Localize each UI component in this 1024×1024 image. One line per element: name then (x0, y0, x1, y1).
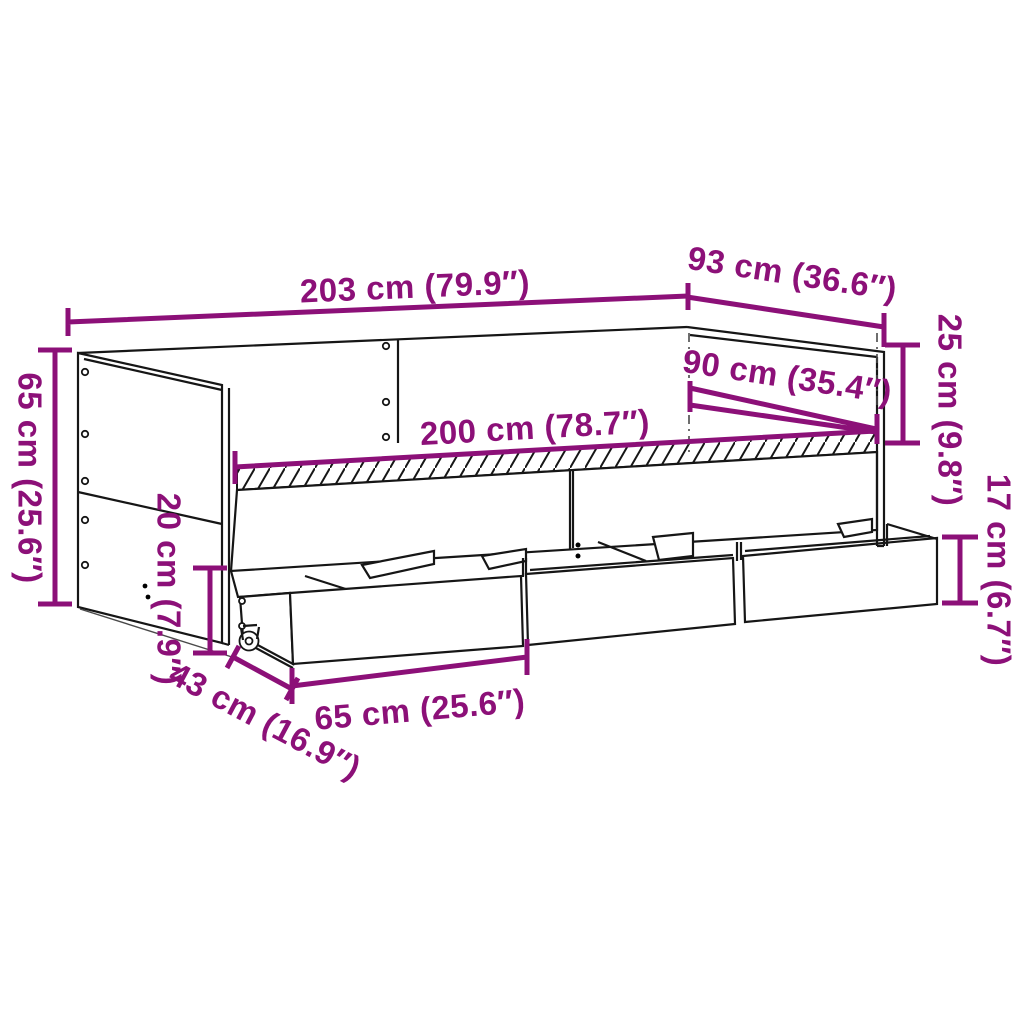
panel-dot (143, 584, 148, 589)
back-panel-top-edge (78, 327, 687, 353)
label-overall-depth: 93 cm (36.6″) (685, 239, 899, 308)
daybed-dimension-diagram: 203 cm (79.9″) 93 cm (36.6″) 25 cm (9.8″… (0, 0, 1024, 1024)
label-sleeping-width: 90 cm (35.4″) (680, 342, 894, 411)
screw-hole (82, 562, 88, 568)
label-drawer-height: 17 cm (6.7″) (980, 474, 1017, 666)
frame-dot (576, 543, 581, 548)
screw-hole (82, 431, 88, 437)
diagram-canvas: 203 cm (79.9″) 93 cm (36.6″) 25 cm (9.8″… (0, 0, 1024, 1024)
screw-hole (383, 343, 389, 349)
screw-hole (82, 369, 88, 375)
drawer-2-front-face (526, 558, 735, 645)
underframe-post (653, 533, 693, 560)
drawer-1-front-face (290, 576, 523, 664)
drawer-3-front-face (743, 538, 937, 622)
label-backrest-height: 25 cm (9.8″) (931, 314, 968, 506)
screw-hole (383, 399, 389, 405)
label-side-height: 65 cm (25.6″) (11, 372, 48, 583)
screw-hole (82, 517, 88, 523)
frame-dot (576, 554, 581, 559)
dim-drawer-height (942, 537, 978, 603)
screw-hole (383, 434, 389, 440)
panel-dot (146, 595, 151, 600)
screw-hole (82, 478, 88, 484)
label-drawer-width: 65 cm (25.6″) (313, 682, 527, 737)
drawer-screw-hole (239, 598, 245, 604)
left-side-panel (78, 353, 222, 643)
